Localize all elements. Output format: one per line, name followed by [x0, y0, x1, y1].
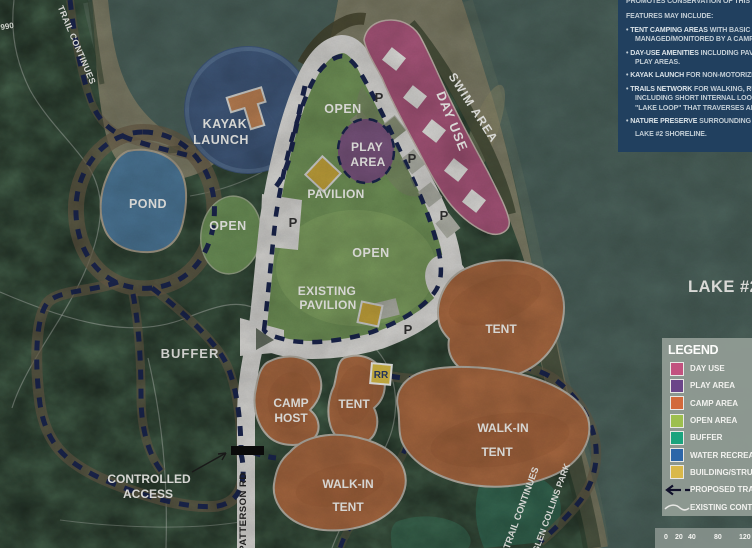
svg-text:KAYAK: KAYAK — [203, 117, 248, 131]
svg-text:AREA: AREA — [350, 155, 385, 169]
svg-text:CONTROLLED: CONTROLLED — [107, 472, 191, 486]
svg-text:CAMP: CAMP — [273, 396, 308, 410]
svg-text:PAVILION: PAVILION — [307, 187, 364, 201]
svg-text:P: P — [408, 151, 417, 166]
svg-text:HOST: HOST — [274, 411, 308, 425]
svg-text:TENT: TENT — [481, 445, 513, 459]
svg-text:PATTERSON RD: PATTERSON RD — [238, 472, 249, 548]
svg-text:TENT: TENT — [485, 322, 517, 336]
svg-text:PAVILION: PAVILION — [299, 298, 356, 312]
svg-text:WALK-IN: WALK-IN — [477, 421, 528, 435]
svg-text:WALK-IN: WALK-IN — [322, 477, 373, 491]
svg-text:LAUNCH: LAUNCH — [193, 133, 249, 147]
svg-text:LAKE #2: LAKE #2 — [688, 278, 752, 296]
svg-text:P: P — [289, 215, 298, 230]
svg-text:PLAY: PLAY — [351, 140, 383, 154]
svg-text:EXISTING: EXISTING — [298, 284, 356, 298]
svg-text:TENT: TENT — [332, 500, 364, 514]
svg-text:OPEN: OPEN — [352, 246, 389, 260]
svg-text:BUFFER: BUFFER — [161, 346, 220, 361]
svg-text:TENT: TENT — [338, 397, 370, 411]
svg-text:OPEN: OPEN — [324, 102, 361, 116]
svg-text:P: P — [375, 90, 384, 105]
svg-text:P: P — [440, 208, 449, 223]
svg-text:P: P — [404, 322, 413, 337]
svg-text:OPEN: OPEN — [209, 219, 246, 233]
svg-text:POND: POND — [129, 197, 167, 211]
svg-text:ACCESS: ACCESS — [123, 487, 173, 501]
